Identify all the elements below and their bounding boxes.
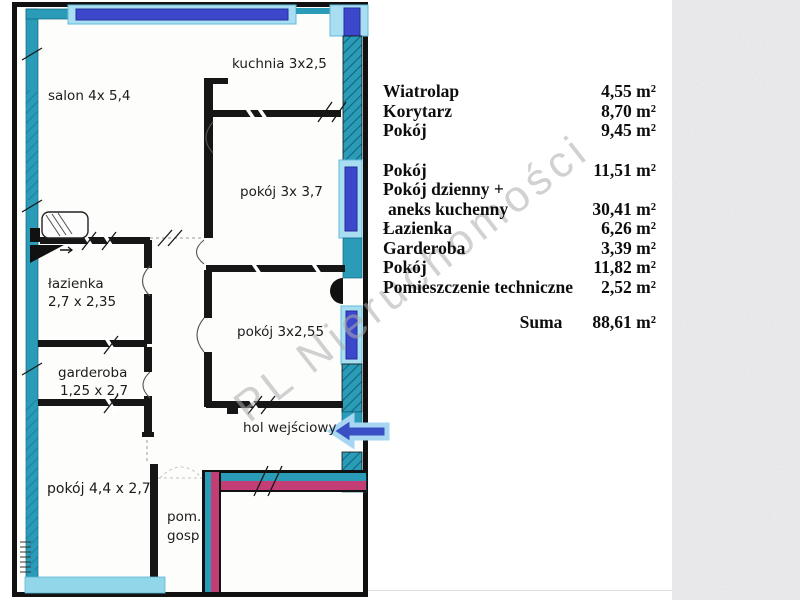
label-salon: salon 4x 5,4: [48, 88, 131, 104]
table-row: Pokój 11,82 m²: [383, 258, 656, 278]
table-row: Garderoba 3,39 m²: [383, 239, 656, 259]
table-row: Pokój 11,51 m²: [383, 161, 656, 181]
total-row: Suma 88,61 m²: [383, 313, 656, 333]
room-area: 11,51 m²: [593, 161, 656, 181]
table-row: Pomieszczenie techniczne 2,52 m²: [383, 278, 656, 298]
total-value: 88,61 m²: [592, 313, 656, 333]
room-area: 8,70 m²: [601, 102, 656, 122]
table-row: Pokój 9,45 m²: [383, 121, 656, 141]
label-pom: pom.: [167, 509, 201, 525]
total-label: Suma: [520, 313, 593, 333]
table-row: Wiatrolap 4,55 m²: [383, 82, 656, 102]
room-name: Wiatrolap: [383, 82, 459, 102]
label-pokoj-37: pokój 3x 3,7: [240, 184, 323, 200]
room-name: Korytarz: [383, 102, 452, 122]
bottom-window-bar: [25, 577, 165, 593]
room-name: Pomieszczenie techniczne: [383, 278, 573, 298]
room-area: 2,52 m²: [601, 278, 656, 298]
label-gosp: gosp: [167, 528, 199, 544]
label-lazienka-dim: 2,7 x 2,35: [48, 294, 116, 310]
label-pokoj-255: pokój 3x2,55: [237, 324, 324, 340]
wall-fixture: [30, 228, 40, 242]
room-name: Łazienka: [383, 219, 452, 239]
floorplan-page: salon 4x 5,4 kuchnia 3x2,5 pokój 3x 3,7 …: [0, 0, 800, 600]
room-name: Pokój: [383, 161, 427, 181]
label-kuchnia: kuchnia 3x2,5: [232, 56, 327, 72]
room-area: 11,82 m²: [593, 258, 656, 278]
label-garderoba: garderoba: [58, 365, 127, 381]
table-row: Korytarz 8,70 m²: [383, 102, 656, 122]
table-row: Łazienka 6,26 m²: [383, 219, 656, 239]
bathtub-icon: [42, 212, 88, 238]
room-name: Garderoba: [383, 239, 465, 259]
noise-texture: [672, 0, 800, 600]
area-table: Wiatrolap 4,55 m² Korytarz 8,70 m² Pokój…: [383, 82, 656, 333]
label-hol: hol wejściowy: [243, 420, 336, 436]
table-row: aneks kuchenny 30,41 m²: [383, 200, 656, 220]
table-row: Pokój dzienny +: [383, 180, 656, 200]
table-gap: [383, 141, 656, 161]
room-area: 6,26 m²: [601, 219, 656, 239]
scan-noise-margin: [672, 0, 800, 600]
room-area: 30,41 m²: [592, 200, 656, 220]
room-name: Pokój: [383, 121, 427, 141]
label-garderoba-dim: 1,25 x 2,7: [60, 383, 128, 399]
room-area: 9,45 m²: [601, 121, 656, 141]
table-gap: [383, 297, 656, 313]
room-name: Pokój dzienny +: [383, 180, 504, 200]
room-name: Pokój: [383, 258, 427, 278]
label-lazienka: łazienka: [48, 276, 104, 292]
room-area: 4,55 m²: [601, 82, 656, 102]
top-right-window: [330, 5, 368, 36]
label-pokoj-44: pokój 4,4 x 2,7: [47, 481, 151, 497]
room-area: 3,39 m²: [601, 239, 656, 259]
room-name: aneks kuchenny: [383, 200, 508, 220]
